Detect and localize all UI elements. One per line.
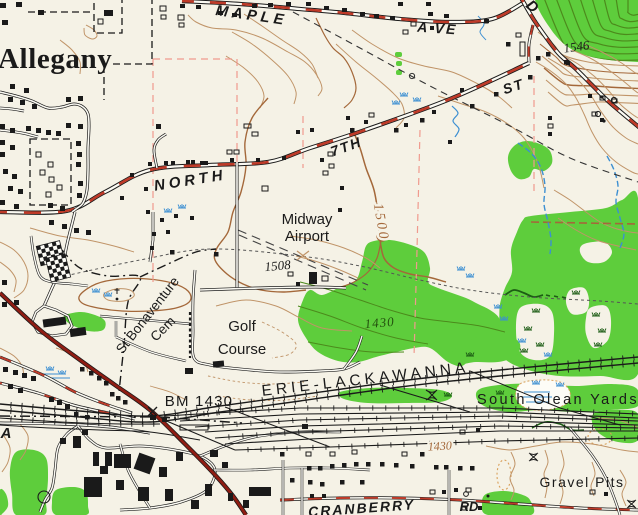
svg-text:1430: 1430	[364, 314, 395, 332]
svg-text:Midway: Midway	[282, 211, 333, 228]
svg-text:Course: Course	[218, 341, 266, 358]
svg-text:A: A	[0, 425, 11, 442]
svg-text:Airport: Airport	[285, 228, 330, 245]
svg-text:Gravel Pits: Gravel Pits	[540, 474, 625, 490]
svg-text:1430: 1430	[427, 438, 452, 453]
svg-text:Golf: Golf	[228, 318, 256, 335]
svg-text:BM 1430: BM 1430	[165, 393, 233, 410]
svg-text:Allegany: Allegany	[0, 43, 112, 75]
svg-text:RD: RD	[460, 499, 479, 514]
svg-text:South Olean Yards: South Olean Yards	[477, 392, 638, 408]
svg-text:1508: 1508	[264, 257, 292, 274]
svg-text:A VE: A VE	[416, 19, 458, 38]
